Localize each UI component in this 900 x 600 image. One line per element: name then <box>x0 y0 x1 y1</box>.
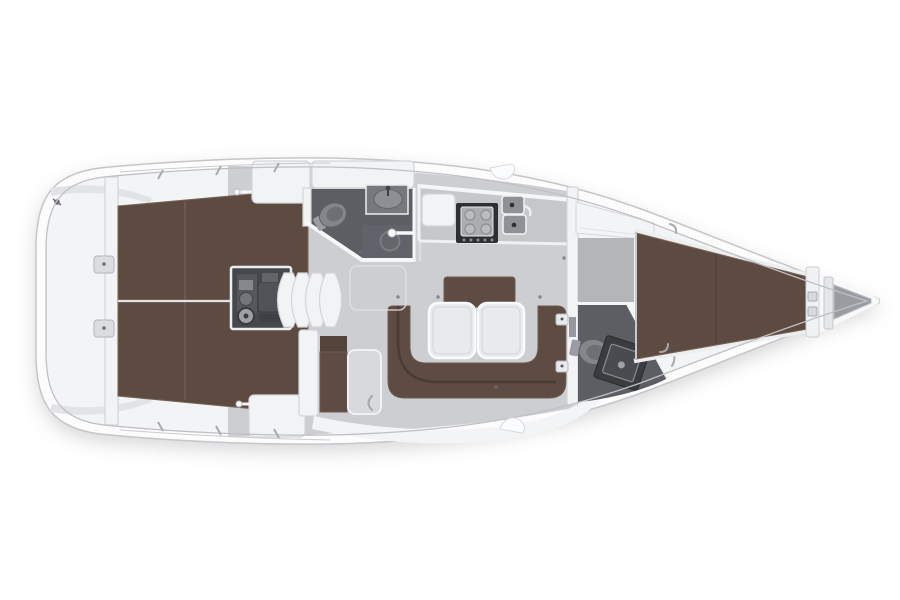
aft-head-wall-left <box>303 188 311 226</box>
floor-fitting-dot <box>538 295 541 298</box>
burner <box>481 224 491 234</box>
latch-dot <box>561 365 564 368</box>
latch-dot <box>561 318 564 321</box>
stove-knob <box>470 239 473 242</box>
bow-section: bow anchor locker <box>806 266 879 340</box>
bow-bulkhead-forward <box>824 277 833 329</box>
step-landing <box>348 350 381 414</box>
basin-faucet-base <box>386 186 391 191</box>
locker-top-forward <box>312 161 414 188</box>
step-4 <box>320 273 342 327</box>
latch-dot <box>102 262 106 266</box>
companionway-pillar <box>299 330 318 416</box>
stove-knob <box>477 239 480 242</box>
engine-mount <box>260 314 282 322</box>
sink-drain <box>510 203 515 208</box>
sink-drain <box>512 223 517 228</box>
bow-latch-lower <box>808 307 817 316</box>
shower-door-knob <box>388 229 396 237</box>
latch-dot <box>102 326 106 330</box>
washbasin-icon <box>366 185 408 214</box>
bench-backrest <box>320 336 347 352</box>
stove-icon <box>456 203 498 243</box>
burner <box>481 210 491 220</box>
table-leaf-right <box>478 303 524 358</box>
engine-filter-icon <box>240 293 253 306</box>
bow-bulkhead-aft <box>806 267 819 337</box>
floor-plan-canvas: hull outline stern transom platform aft … <box>0 0 900 600</box>
floor-plan: hull outline stern transom platform aft … <box>0 0 900 600</box>
burner <box>465 224 475 234</box>
floor-fitting-dot <box>396 295 399 298</box>
locker-bottom-aft <box>249 395 305 437</box>
bow-latch-upper <box>808 292 817 301</box>
door-hook-bottom-knob <box>236 401 242 407</box>
table-leaf-left <box>429 303 475 358</box>
engine-pulley-hub <box>244 314 249 319</box>
galley-fridge <box>422 194 455 226</box>
bench-seat <box>320 352 347 412</box>
engine-alternator <box>239 280 253 290</box>
forward-cabin-floor <box>578 238 634 302</box>
burner <box>465 210 475 220</box>
stove-knob <box>484 239 487 242</box>
transom-bulkhead <box>105 177 118 425</box>
stove-knob <box>463 239 466 242</box>
engine-manifold <box>262 273 278 282</box>
bulkhead-door-slot <box>569 317 576 337</box>
stove-knob <box>491 239 494 242</box>
floor-fitting-dot <box>562 256 565 259</box>
floor-fitting-dot <box>436 295 439 298</box>
door-hook-top-knob <box>234 189 240 195</box>
floor-fitting-dot <box>358 250 361 253</box>
floor-fitting-dot <box>494 385 497 388</box>
